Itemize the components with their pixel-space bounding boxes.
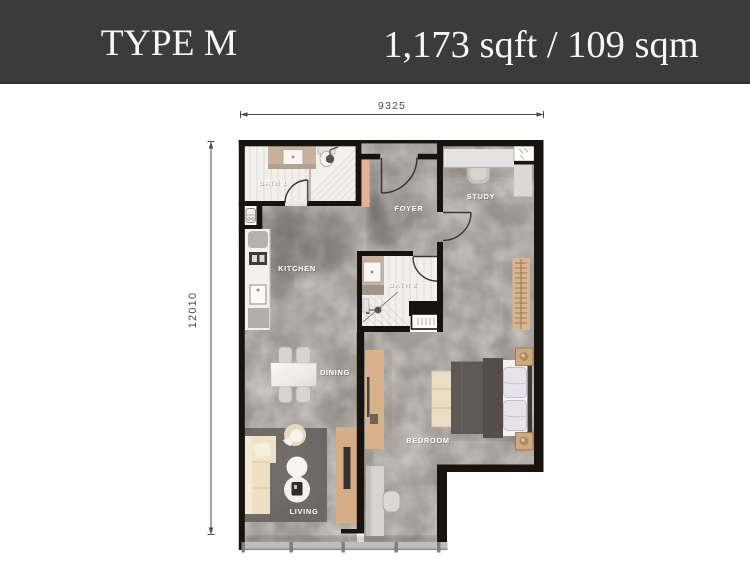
svg-text:BATH 2: BATH 2	[389, 282, 417, 289]
svg-text:DINING: DINING	[320, 368, 350, 377]
svg-text:12010: 12010	[187, 292, 199, 329]
svg-text:FOYER: FOYER	[395, 204, 424, 213]
svg-text:1,173 sqft / 109 sqm: 1,173 sqft / 109 sqm	[383, 24, 699, 66]
svg-text:9325: 9325	[378, 100, 406, 112]
svg-text:STUDY: STUDY	[467, 192, 496, 201]
svg-text:TYPE M: TYPE M	[101, 23, 237, 64]
svg-text:LIVING: LIVING	[290, 507, 319, 516]
svg-text:BATH 1: BATH 1	[259, 180, 287, 187]
svg-text:BEDROOM: BEDROOM	[406, 436, 450, 445]
svg-text:KITCHEN: KITCHEN	[278, 264, 316, 273]
